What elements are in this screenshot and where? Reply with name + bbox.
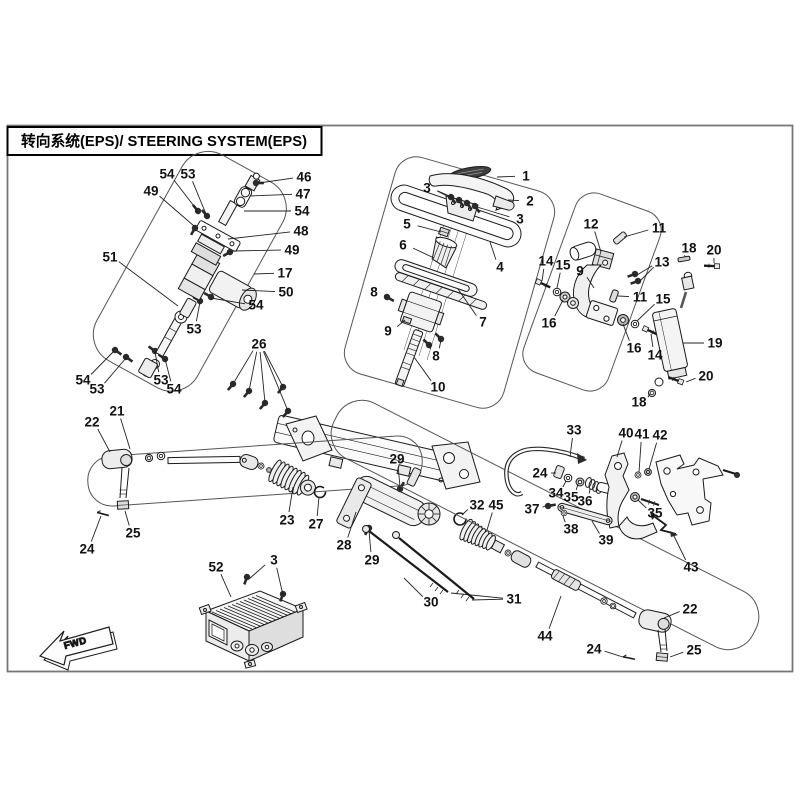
steering-diagram-svg: 转向系统(EPS)/ STEERING SYSTEM(EPS) [0,0,800,800]
svg-text:41: 41 [634,427,650,442]
callout-18: 18 [681,241,697,258]
svg-text:22: 22 [84,415,99,430]
svg-text:16: 16 [626,341,642,356]
svg-text:24: 24 [586,642,602,657]
page-title: 转向系统(EPS)/ STEERING SYSTEM(EPS) [21,132,307,150]
svg-text:6: 6 [399,238,407,253]
svg-text:24: 24 [79,542,95,557]
svg-text:3: 3 [423,181,431,196]
svg-text:32: 32 [469,498,484,513]
svg-text:29: 29 [389,452,404,467]
svg-text:53: 53 [186,322,202,337]
svg-text:1: 1 [522,169,530,184]
svg-text:30: 30 [423,595,438,610]
svg-text:27: 27 [308,517,323,532]
svg-text:36: 36 [577,494,593,509]
svg-text:51: 51 [102,250,118,265]
svg-text:35: 35 [647,506,663,521]
svg-text:2: 2 [526,194,534,209]
svg-text:7: 7 [479,315,487,330]
svg-text:48: 48 [293,224,309,239]
svg-text:15: 15 [655,292,671,307]
svg-text:25: 25 [125,526,141,541]
svg-text:47: 47 [295,187,310,202]
svg-text:22: 22 [682,602,697,617]
svg-text:33: 33 [566,423,582,438]
svg-text:54: 54 [75,373,91,388]
parts-catalog-page: 转向系统(EPS)/ STEERING SYSTEM(EPS) [0,0,800,800]
svg-text:42: 42 [652,428,667,443]
svg-text:14: 14 [647,348,663,363]
svg-text:8: 8 [432,349,440,364]
svg-text:16: 16 [541,316,557,331]
svg-text:12: 12 [583,217,598,232]
svg-text:54: 54 [159,167,175,182]
svg-text:9: 9 [576,264,584,279]
svg-text:25: 25 [686,643,702,658]
svg-text:49: 49 [284,243,299,258]
svg-text:40: 40 [618,426,633,441]
svg-text:43: 43 [683,560,699,575]
svg-text:45: 45 [488,498,504,513]
svg-text:21: 21 [109,404,125,419]
svg-text:9: 9 [384,324,392,339]
svg-text:53: 53 [180,167,196,182]
svg-text:5: 5 [403,217,411,232]
svg-text:44: 44 [537,629,553,644]
svg-text:54: 54 [166,382,182,397]
svg-text:28: 28 [336,538,352,553]
svg-text:37: 37 [524,502,539,517]
svg-text:50: 50 [278,285,293,300]
svg-text:11: 11 [633,290,648,305]
svg-text:11: 11 [652,221,667,236]
svg-text:10: 10 [430,380,445,395]
svg-text:17: 17 [277,266,292,281]
svg-text:23: 23 [279,513,295,528]
svg-text:54: 54 [248,298,264,313]
svg-text:19: 19 [707,336,722,351]
svg-text:52: 52 [208,560,223,575]
svg-text:8: 8 [370,285,378,300]
svg-text:46: 46 [296,170,312,185]
svg-text:20: 20 [698,369,713,384]
svg-text:15: 15 [555,258,571,273]
svg-text:18: 18 [681,241,697,256]
svg-text:49: 49 [143,184,158,199]
svg-text:34: 34 [548,486,564,501]
svg-text:14: 14 [538,254,554,269]
svg-text:20: 20 [706,243,721,258]
svg-text:39: 39 [598,533,613,548]
svg-text:3: 3 [270,553,278,568]
svg-text:38: 38 [563,522,579,537]
svg-text:54: 54 [294,204,310,219]
svg-text:53: 53 [89,382,105,397]
svg-text:13: 13 [654,255,670,270]
svg-text:29: 29 [364,553,379,568]
svg-text:31: 31 [506,592,522,607]
svg-text:3: 3 [516,212,524,227]
svg-text:4: 4 [496,260,504,275]
svg-text:24: 24 [532,466,548,481]
svg-text:26: 26 [251,337,267,352]
svg-text:18: 18 [631,395,647,410]
